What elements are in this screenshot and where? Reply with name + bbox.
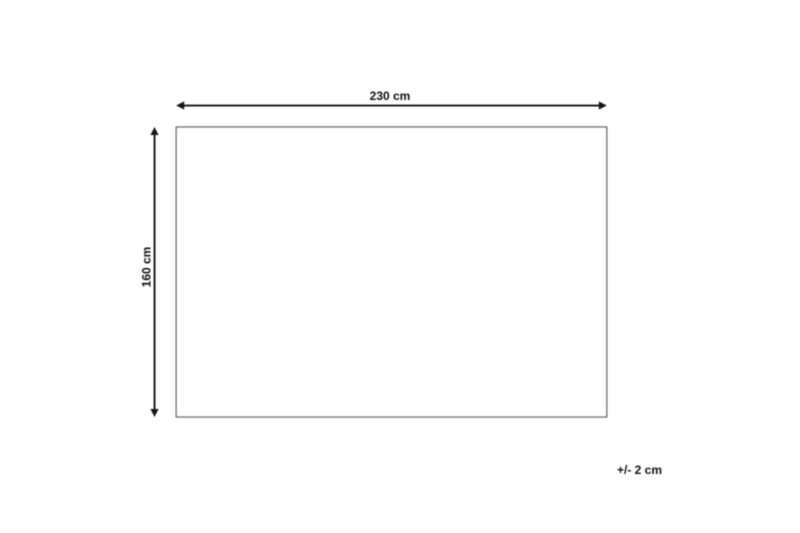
svg-text:160 cm: 160 cm <box>140 247 154 288</box>
svg-text:+/- 2 cm: +/- 2 cm <box>617 463 662 477</box>
svg-text:230 cm: 230 cm <box>370 89 411 103</box>
